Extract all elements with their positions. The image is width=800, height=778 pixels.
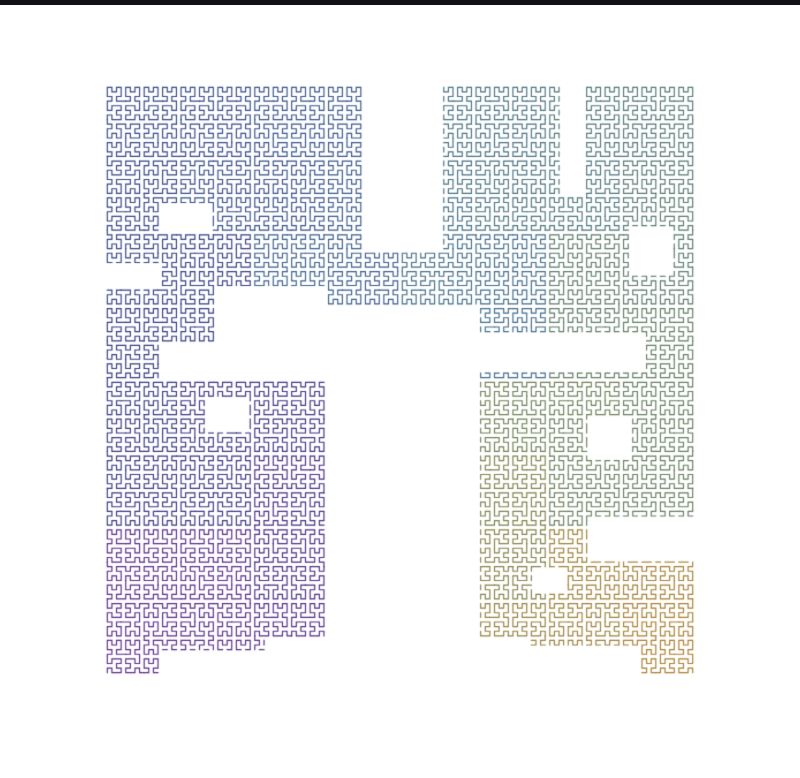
page-background bbox=[0, 0, 800, 778]
top-black-bar bbox=[0, 0, 800, 5]
hilbert-curve-canvas bbox=[0, 0, 800, 778]
